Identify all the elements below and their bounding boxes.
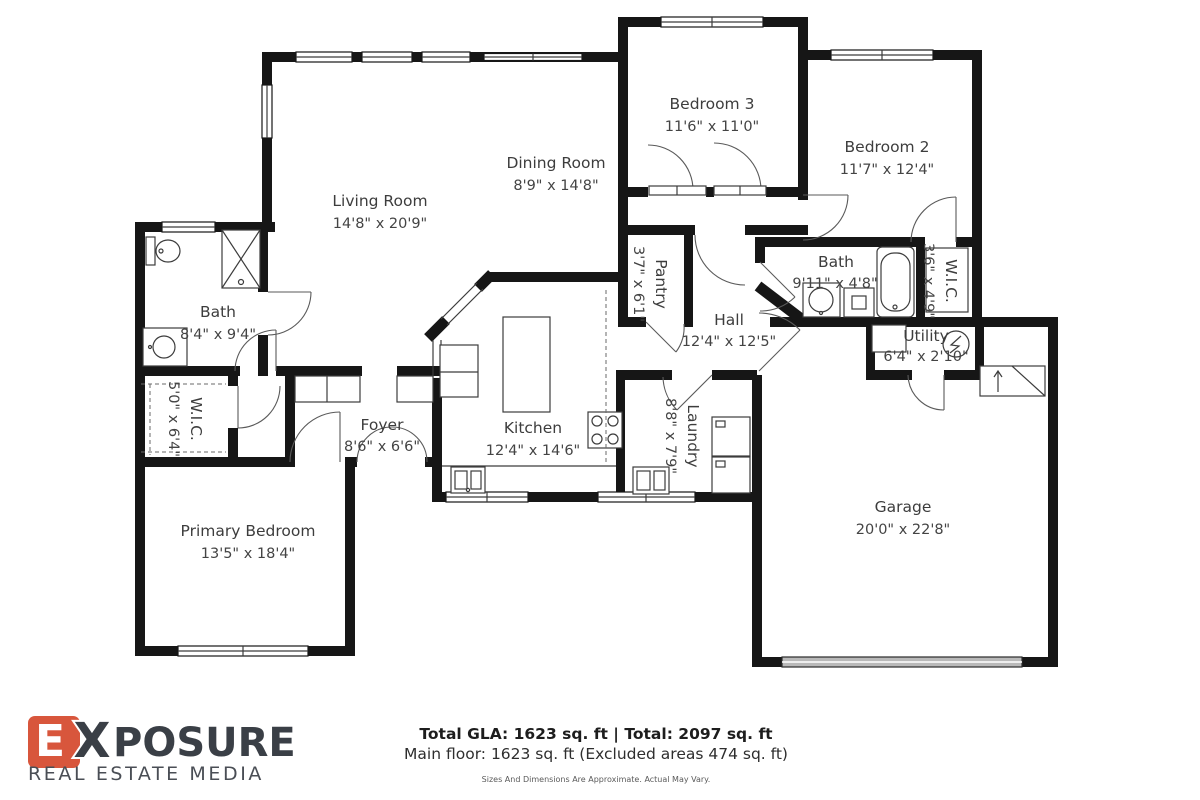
room-dims-laundry: 8'8" x 7'9"	[662, 398, 678, 474]
room-label-garage: Garage	[875, 498, 932, 516]
closet-slider	[649, 186, 706, 195]
footer-summary: Total GLA: 1623 sq. ft | Total: 2097 sq.…	[404, 725, 788, 784]
foyer-closet	[295, 376, 360, 402]
door-primary-bedroom	[290, 412, 340, 462]
room-label-hall: Hall	[714, 311, 744, 329]
room-dims-bedroom-3: 11'6" x 11'0"	[665, 119, 759, 135]
room-dims-utility: 6'4" x 2'10"	[883, 349, 968, 365]
room-dims-pantry: 3'7" x 6'1"	[630, 246, 646, 322]
closet-slider	[714, 186, 766, 195]
window	[661, 17, 763, 27]
room-dims-bath-left: 8'4" x 9'4"	[180, 327, 256, 343]
room-label-bath-right: Bath	[818, 253, 854, 271]
foyer-closet	[397, 376, 433, 402]
window	[162, 222, 215, 232]
washer-fixture	[712, 417, 750, 456]
room-dims-garage: 20'0" x 22'8"	[856, 522, 950, 538]
window	[178, 646, 308, 656]
room-dims-bath-right: 9'11" x 4'8"	[792, 276, 877, 292]
room-dims-dining-room: 8'9" x 14'8"	[513, 178, 598, 194]
room-label-living-room: Living Room	[332, 192, 427, 210]
room-dims-wic-left: 5'0" x 6'4"	[165, 381, 181, 457]
brand-logo: E X POSURE REAL ESTATE MEDIA	[28, 713, 296, 785]
bathtub-fixture	[877, 247, 914, 317]
door-closet-bedroom3-left	[648, 145, 693, 190]
room-label-kitchen: Kitchen	[504, 419, 562, 437]
room-labels: Living Room 14'8" x 20'9" Dining Room 8'…	[165, 95, 969, 562]
logo-letter-e: E	[35, 716, 65, 767]
window	[484, 54, 582, 61]
garage-door	[782, 657, 1022, 667]
window	[262, 85, 272, 138]
room-dims-foyer: 8'6" x 6'6"	[344, 439, 420, 455]
total-area-text: Total GLA: 1623 sq. ft | Total: 2097 sq.…	[419, 725, 773, 744]
room-label-utility: Utility	[903, 327, 949, 345]
disclaimer-text: Sizes And Dimensions Are Approximate. Ac…	[482, 775, 711, 784]
room-label-laundry: Laundry	[684, 404, 702, 467]
window	[296, 52, 352, 62]
shower-fixture	[222, 230, 260, 288]
dryer-fixture	[712, 457, 750, 493]
room-label-pantry: Pantry	[652, 259, 670, 309]
room-dims-living-room: 14'8" x 20'9"	[333, 216, 427, 232]
room-label-foyer: Foyer	[361, 416, 405, 434]
door-bath-left-living	[268, 292, 311, 335]
room-label-bedroom-3: Bedroom 3	[670, 95, 755, 113]
room-label-wic-left: W.I.C.	[187, 397, 205, 441]
door-pantry	[646, 322, 684, 352]
refrigerator	[440, 345, 478, 397]
utility-appliance	[872, 325, 906, 352]
door-wic-left	[238, 386, 280, 428]
room-label-primary-bedroom: Primary Bedroom	[181, 522, 316, 540]
room-label-wic-right: W.I.C.	[942, 259, 960, 303]
room-dims-hall: 12'4" x 12'5"	[682, 334, 776, 350]
kitchen-island	[503, 317, 550, 412]
door-bedroom-3	[695, 235, 745, 285]
main-floor-area-text: Main floor: 1623 sq. ft (Excluded areas …	[404, 745, 788, 763]
door-wic-right	[911, 197, 956, 242]
toilet-fixture	[146, 237, 180, 265]
toilet-fixture	[844, 288, 874, 317]
room-label-bedroom-2: Bedroom 2	[845, 138, 930, 156]
door-bedroom-2	[803, 195, 848, 240]
fixtures	[141, 186, 1045, 667]
garage-step-landing	[980, 366, 1045, 396]
door-utility	[908, 375, 944, 410]
logo-name-rest: POSURE	[113, 720, 296, 766]
door-closet-bedroom3-right	[714, 143, 761, 190]
window	[362, 52, 412, 62]
window	[422, 52, 470, 62]
logo-subtitle: REAL ESTATE MEDIA	[28, 763, 264, 785]
closet-rod	[141, 384, 226, 455]
room-dims-kitchen: 12'4" x 14'6"	[486, 443, 580, 459]
room-label-dining-room: Dining Room	[506, 154, 605, 172]
room-dims-wic-right: 3'6" x 4'9"	[920, 243, 936, 319]
room-dims-primary-bedroom: 13'5" x 18'4"	[201, 546, 295, 562]
stove-fixture	[588, 412, 622, 448]
logo-letter-x: X	[73, 713, 110, 769]
window	[831, 50, 933, 60]
room-label-bath-left: Bath	[200, 303, 236, 321]
room-dims-bedroom-2: 11'7" x 12'4"	[840, 162, 934, 178]
kitchen-sink	[451, 467, 485, 493]
floor-plan-canvas: Living Room 14'8" x 20'9" Dining Room 8'…	[0, 0, 1200, 800]
diagonal-walls	[428, 274, 804, 338]
